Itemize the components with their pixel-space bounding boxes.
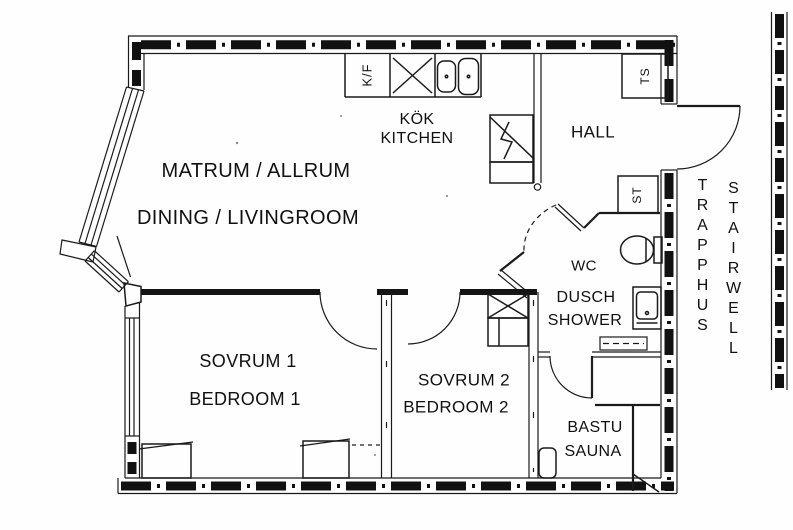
hall-wardrobe bbox=[490, 115, 533, 183]
stove-symbol bbox=[393, 58, 432, 93]
fridge-freezer-label: K/F bbox=[361, 63, 374, 86]
wc-door-swing bbox=[524, 205, 556, 252]
livingroom-label-en: DINING / LIVINGROOM bbox=[137, 208, 359, 228]
bedroom1-radiator-left bbox=[139, 442, 193, 478]
sauna-heater bbox=[539, 448, 556, 478]
livingroom-label-sv: MATRUM / ALLRUM bbox=[162, 161, 351, 181]
bedroom2-wardrobe bbox=[488, 294, 528, 346]
stairwell-label-en: STAIRWELL bbox=[725, 180, 741, 360]
window-leader-line bbox=[117, 236, 131, 277]
bedroom1-label-sv: SOVRUM 1 bbox=[199, 352, 296, 370]
drying-cabinet-label: TS bbox=[639, 67, 651, 84]
toilet-symbol bbox=[621, 236, 663, 264]
sauna-door-swing bbox=[550, 356, 592, 398]
bedroom2-label-en: BEDROOM 2 bbox=[403, 399, 509, 416]
kitchen-hall-wall bbox=[534, 54, 541, 190]
stairwell-outer-wall bbox=[772, 12, 788, 390]
bedroom2-door-swing bbox=[408, 292, 460, 344]
bedroom-divider-wall bbox=[377, 292, 408, 478]
kitchen-label-sv: KÖK bbox=[400, 112, 435, 128]
bedroom1-corner-block bbox=[124, 283, 141, 306]
kitchen-label-en: KITCHEN bbox=[380, 131, 453, 147]
bedroom2-east-wall bbox=[529, 292, 538, 478]
sink-basins-symbol bbox=[438, 59, 479, 95]
bedroom2-label-sv: SOVRUM 2 bbox=[418, 372, 510, 389]
wc-walls bbox=[498, 204, 660, 298]
floor-plan: MATRUM / ALLRUM DINING / LIVINGROOM KÖK … bbox=[0, 0, 793, 530]
hall-label: HALL bbox=[571, 124, 615, 141]
exterior-wall-top bbox=[128, 36, 677, 54]
sauna-label-en: SAUNA bbox=[564, 444, 621, 460]
entry-door bbox=[677, 106, 740, 169]
shower-label-en: SHOWER bbox=[548, 313, 622, 329]
sauna-walls bbox=[538, 352, 661, 398]
bay-window-short bbox=[85, 251, 128, 292]
floor-plan-drawing bbox=[0, 0, 793, 530]
bay-window-long bbox=[79, 87, 144, 247]
cleaning-closet-label: ST bbox=[631, 186, 643, 203]
bedroom1-door-swing bbox=[320, 292, 377, 349]
bedroom1-label-en: BEDROOM 1 bbox=[189, 390, 301, 408]
shower-label-sv: DUSCH bbox=[557, 290, 616, 306]
stairwell-label-sv: TRAPPHUS bbox=[694, 177, 710, 337]
shower-bench bbox=[600, 337, 647, 350]
bay-window-elbow bbox=[60, 240, 96, 262]
bedroom1-radiator-right bbox=[300, 439, 350, 478]
sauna-label-sv: BASTU bbox=[567, 420, 622, 436]
bedroom1-west-wall-window bbox=[125, 303, 140, 478]
exterior-wall-right bbox=[661, 36, 677, 493]
exterior-wall-bottom bbox=[118, 478, 677, 494]
washbasin-symbol bbox=[633, 287, 661, 329]
wc-label: WC bbox=[571, 259, 597, 274]
